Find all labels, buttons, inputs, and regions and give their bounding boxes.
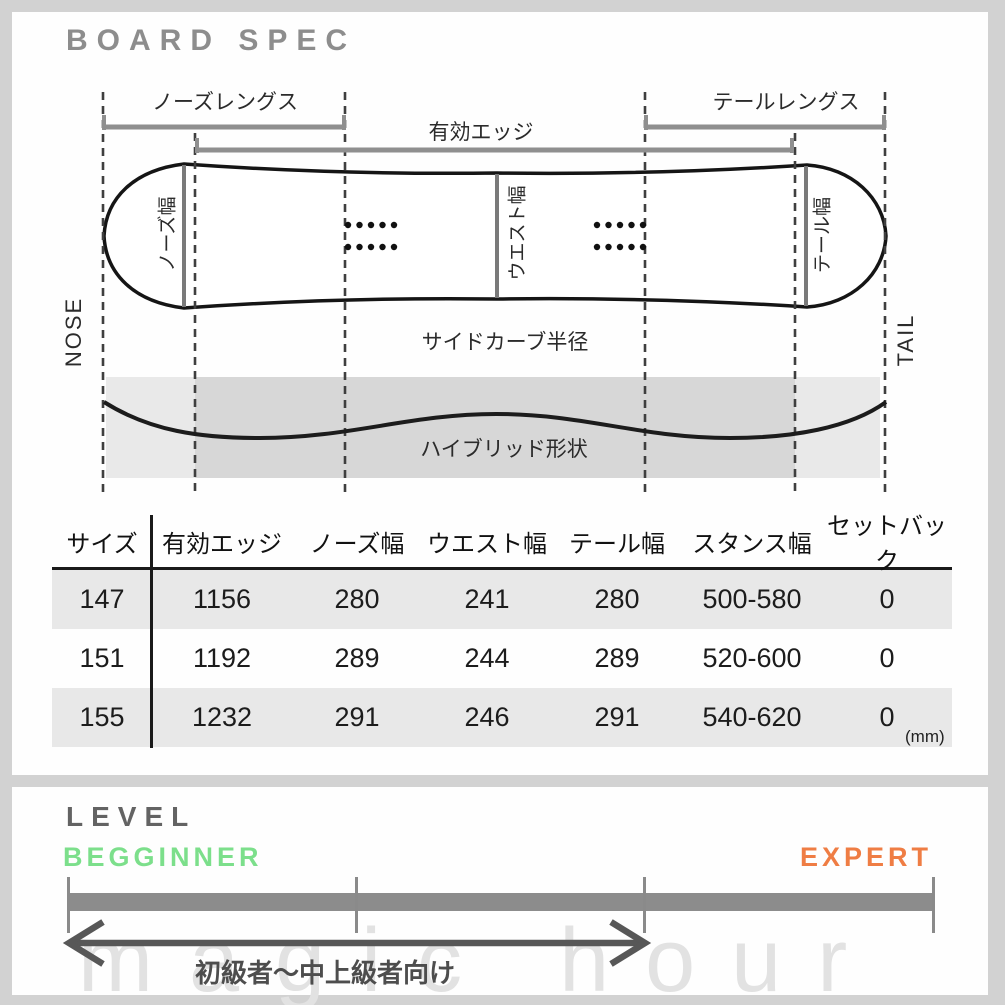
- table-row: 155 1232 291 246 291 540-620 0: [52, 688, 952, 747]
- table-cell: 520-600: [682, 643, 822, 674]
- sidecut-radius-label: サイドカーブ半径: [422, 326, 589, 356]
- table-cell: 244: [422, 643, 552, 674]
- beginner-label: BEGGINNER: [63, 842, 263, 873]
- column-header-tail-width: テール幅: [552, 524, 682, 559]
- table-cell: 289: [292, 643, 422, 674]
- table-cell: 1192: [152, 643, 292, 674]
- column-header-size: サイズ: [52, 524, 152, 559]
- tail-end-label: TAIL: [893, 314, 919, 367]
- level-bar: [68, 893, 935, 911]
- spec-table: サイズ 有効エッジ ノーズ幅 ウエスト幅 テール幅 スタンス幅 セットバック 1…: [52, 515, 952, 747]
- column-header-stance-width: スタンス幅: [682, 524, 822, 559]
- table-cell: 241: [422, 584, 552, 615]
- hybrid-shape-label: ハイブリッド形状: [420, 433, 588, 463]
- unit-label: (mm): [905, 727, 945, 747]
- table-cell: 291: [552, 702, 682, 733]
- table-cell: 246: [422, 702, 552, 733]
- nose-end-label: NOSE: [61, 297, 87, 367]
- range-label: 初級者〜中上級者向け: [170, 953, 480, 990]
- column-header-effective-edge: 有効エッジ: [152, 524, 292, 559]
- table-cell: 500-580: [682, 584, 822, 615]
- column-header-nose-width: ノーズ幅: [292, 524, 422, 559]
- table-cell: 147: [52, 584, 152, 615]
- column-header-waist-width: ウエスト幅: [422, 524, 552, 559]
- table-cell: 280: [552, 584, 682, 615]
- table-cell: 151: [52, 643, 152, 674]
- nose-length-label: ノーズレングス: [152, 86, 298, 116]
- table-column-divider: [150, 515, 153, 748]
- table-row: 147 1156 280 241 280 500-580 0: [52, 570, 952, 629]
- tail-length-label: テールレングス: [713, 86, 860, 116]
- table-cell: 289: [552, 643, 682, 674]
- nose-width-label: ノーズ幅: [153, 196, 180, 271]
- table-cell: 0: [822, 643, 952, 674]
- level-title: LEVEL: [66, 801, 196, 833]
- table-cell: 540-620: [682, 702, 822, 733]
- table-cell: 280: [292, 584, 422, 615]
- expert-label: EXPERT: [787, 842, 932, 873]
- table-row: 151 1192 289 244 289 520-600 0: [52, 629, 952, 688]
- table-cell: 0: [822, 584, 952, 615]
- table-cell: 1156: [152, 584, 292, 615]
- table-header-row: サイズ 有効エッジ ノーズ幅 ウエスト幅 テール幅 スタンス幅 セットバック: [52, 515, 952, 570]
- tail-width-label: テール幅: [808, 197, 835, 273]
- level-tick: [932, 877, 935, 933]
- column-header-setback: セットバック: [822, 506, 952, 576]
- table-cell: 155: [52, 702, 152, 733]
- waist-width-label: ウエスト幅: [503, 185, 530, 280]
- effective-edge-label: 有効エッジ: [429, 116, 534, 146]
- table-cell: 291: [292, 702, 422, 733]
- table-cell: 1232: [152, 702, 292, 733]
